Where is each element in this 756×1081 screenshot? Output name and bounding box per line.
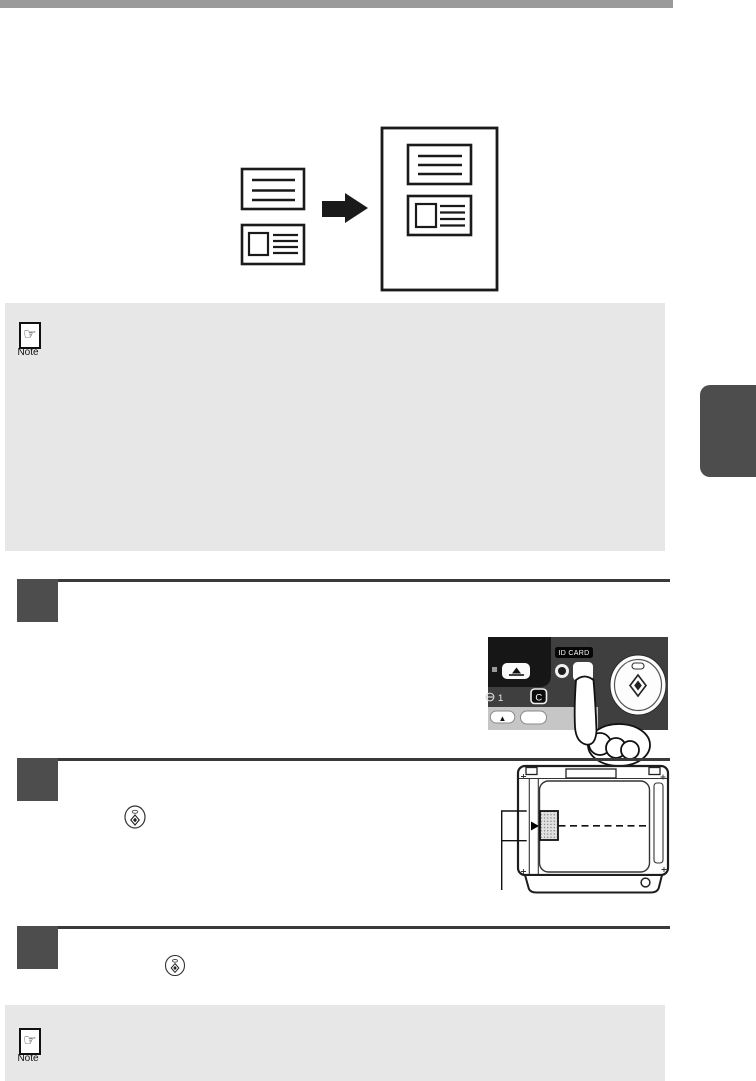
start-key-icon-2 bbox=[165, 955, 185, 976]
lid-handle bbox=[566, 769, 616, 778]
control-panel-figure: ID CARD 1 C ▲ bbox=[483, 632, 670, 765]
step-3-rule bbox=[17, 926, 670, 929]
note-label: Note bbox=[11, 347, 45, 358]
copy-result-page bbox=[382, 128, 497, 290]
document-glass-figure bbox=[495, 762, 670, 895]
step-1-number-box bbox=[17, 579, 58, 622]
note-box-top: ☞ Note bbox=[5, 303, 665, 551]
start-button bbox=[610, 655, 666, 715]
note-box-bottom: ☞ Note bbox=[5, 1005, 665, 1081]
clear-button: C bbox=[531, 689, 547, 704]
up-arrow-button: ▲ bbox=[490, 711, 515, 723]
lid-latch-right bbox=[649, 768, 660, 775]
exposure-panel bbox=[488, 637, 551, 687]
manual-page: ☞ Note ID CARD bbox=[0, 0, 756, 1081]
id-card-led-button bbox=[555, 664, 569, 678]
original-doc-card-icon bbox=[242, 225, 304, 264]
arrow-right-icon bbox=[322, 193, 368, 223]
original-doc-text-icon bbox=[242, 169, 304, 209]
copied-doc-text-icon bbox=[408, 145, 471, 184]
note-icon-2: ☞ bbox=[19, 1028, 41, 1055]
pointing-hand-icon-2: ☞ bbox=[23, 1033, 36, 1048]
id-card-placeholder bbox=[540, 811, 558, 840]
size-scale-strip bbox=[654, 783, 663, 863]
tray-circle-detail bbox=[641, 878, 650, 887]
pointing-hand-icon: ☞ bbox=[23, 327, 36, 342]
step-1-rule bbox=[17, 579, 670, 582]
exposure-mode-button bbox=[502, 663, 530, 679]
clear-button-label: C bbox=[535, 693, 542, 704]
blank-key-button bbox=[521, 711, 547, 724]
up-arrow-icon: ▲ bbox=[499, 714, 507, 723]
note-icon: ☞ bbox=[19, 322, 41, 349]
start-led-icon bbox=[632, 663, 644, 669]
page-header-bar bbox=[0, 0, 673, 8]
copy-quantity-value: 1 bbox=[498, 693, 503, 704]
copied-doc-card-icon bbox=[408, 196, 471, 235]
start-key-icon bbox=[124, 805, 146, 829]
lid-latch-left bbox=[526, 768, 537, 775]
intro-figure bbox=[230, 125, 510, 295]
step-2-number-box bbox=[17, 758, 58, 801]
chapter-tab bbox=[700, 385, 756, 477]
step-2-rule bbox=[17, 758, 670, 761]
exposure-indicator bbox=[492, 667, 497, 672]
step-3-number-box bbox=[17, 926, 58, 969]
note-label-2: Note bbox=[11, 1053, 45, 1064]
id-card-label: ID CARD bbox=[559, 650, 590, 657]
id-card-label-badge: ID CARD bbox=[555, 647, 593, 658]
